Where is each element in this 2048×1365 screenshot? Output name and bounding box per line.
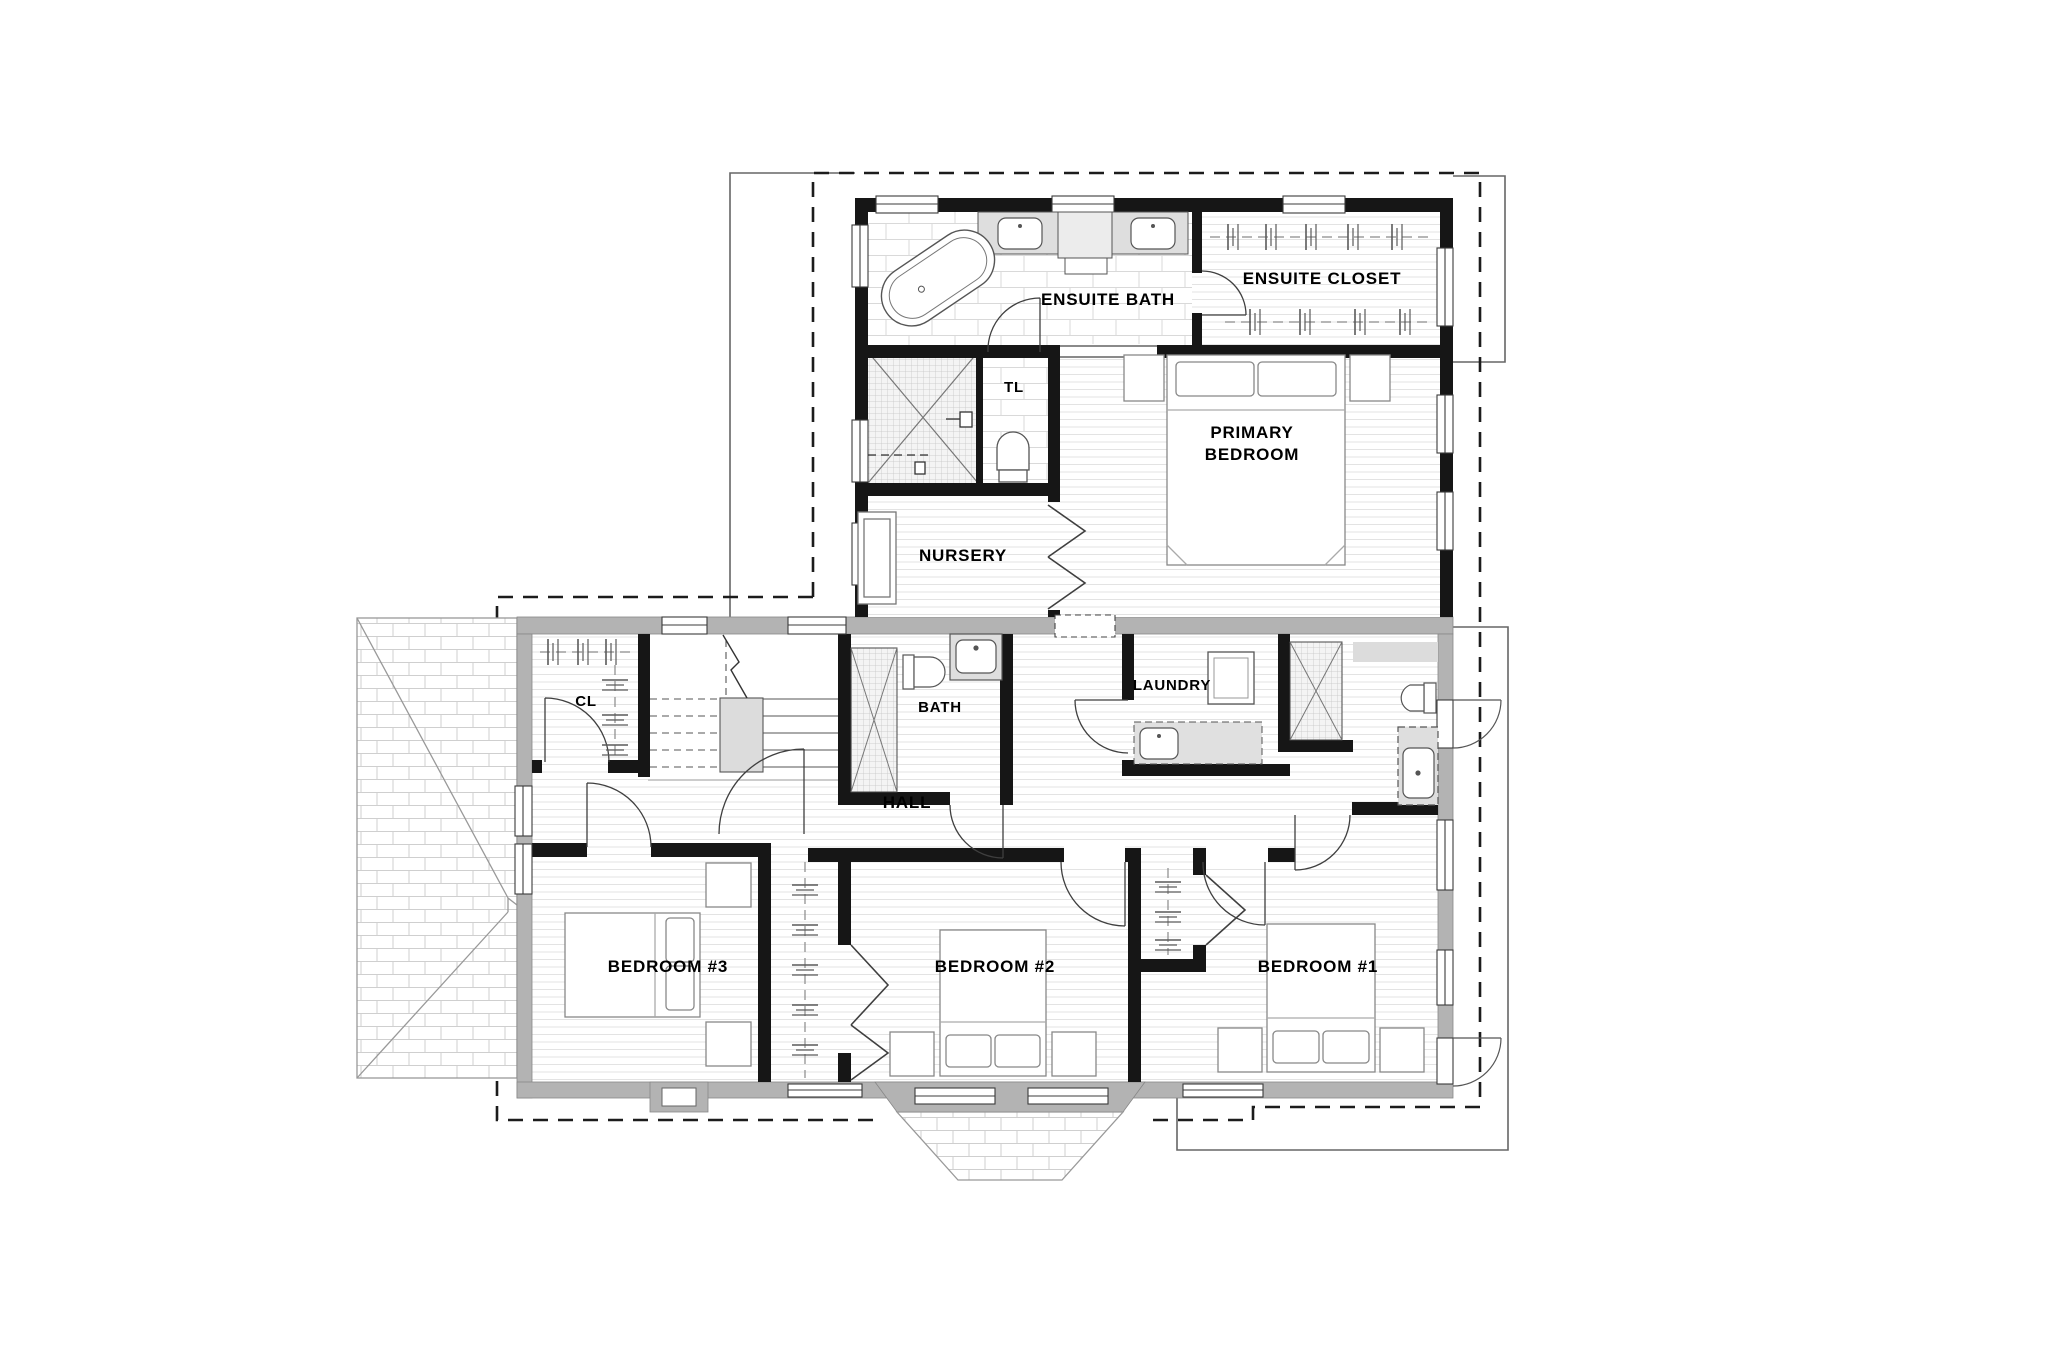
bath2-shower: [1290, 642, 1342, 740]
label-ensuite-closet: ENSUITE CLOSET: [1243, 269, 1402, 288]
br1-door-opening: [1206, 846, 1268, 864]
chimney-flue: [662, 1088, 696, 1106]
label-hall: HALL: [883, 793, 932, 812]
label-primary-line1: PRIMARY: [1210, 423, 1293, 442]
label-hall-closet: CL: [575, 693, 597, 710]
label-bedroom3: BEDROOM #3: [608, 957, 728, 976]
toilet-tl: [997, 432, 1029, 482]
label-toilet-room: TL: [1004, 379, 1024, 396]
label-bath: BATH: [918, 699, 962, 716]
crib: [858, 512, 896, 604]
label-ensuite-bath: ENSUITE BATH: [1041, 290, 1175, 309]
label-bedroom1: BEDROOM #1: [1258, 957, 1378, 976]
br2-door-opening: [1064, 846, 1125, 864]
label-laundry: LAUNDRY: [1133, 677, 1211, 694]
hall-bath-shower: [851, 648, 897, 792]
side-roof: [357, 618, 517, 1078]
label-primary-line2: BEDROOM: [1205, 445, 1299, 464]
label-nursery: NURSERY: [919, 546, 1007, 565]
floor-plan: ENSUITE BATH ENSUITE CLOSET TL PRIMARY B…: [0, 0, 2048, 1365]
floor-plan-drawing: ENSUITE BATH ENSUITE CLOSET TL PRIMARY B…: [0, 0, 2048, 1365]
label-bedroom2: BEDROOM #2: [935, 957, 1055, 976]
